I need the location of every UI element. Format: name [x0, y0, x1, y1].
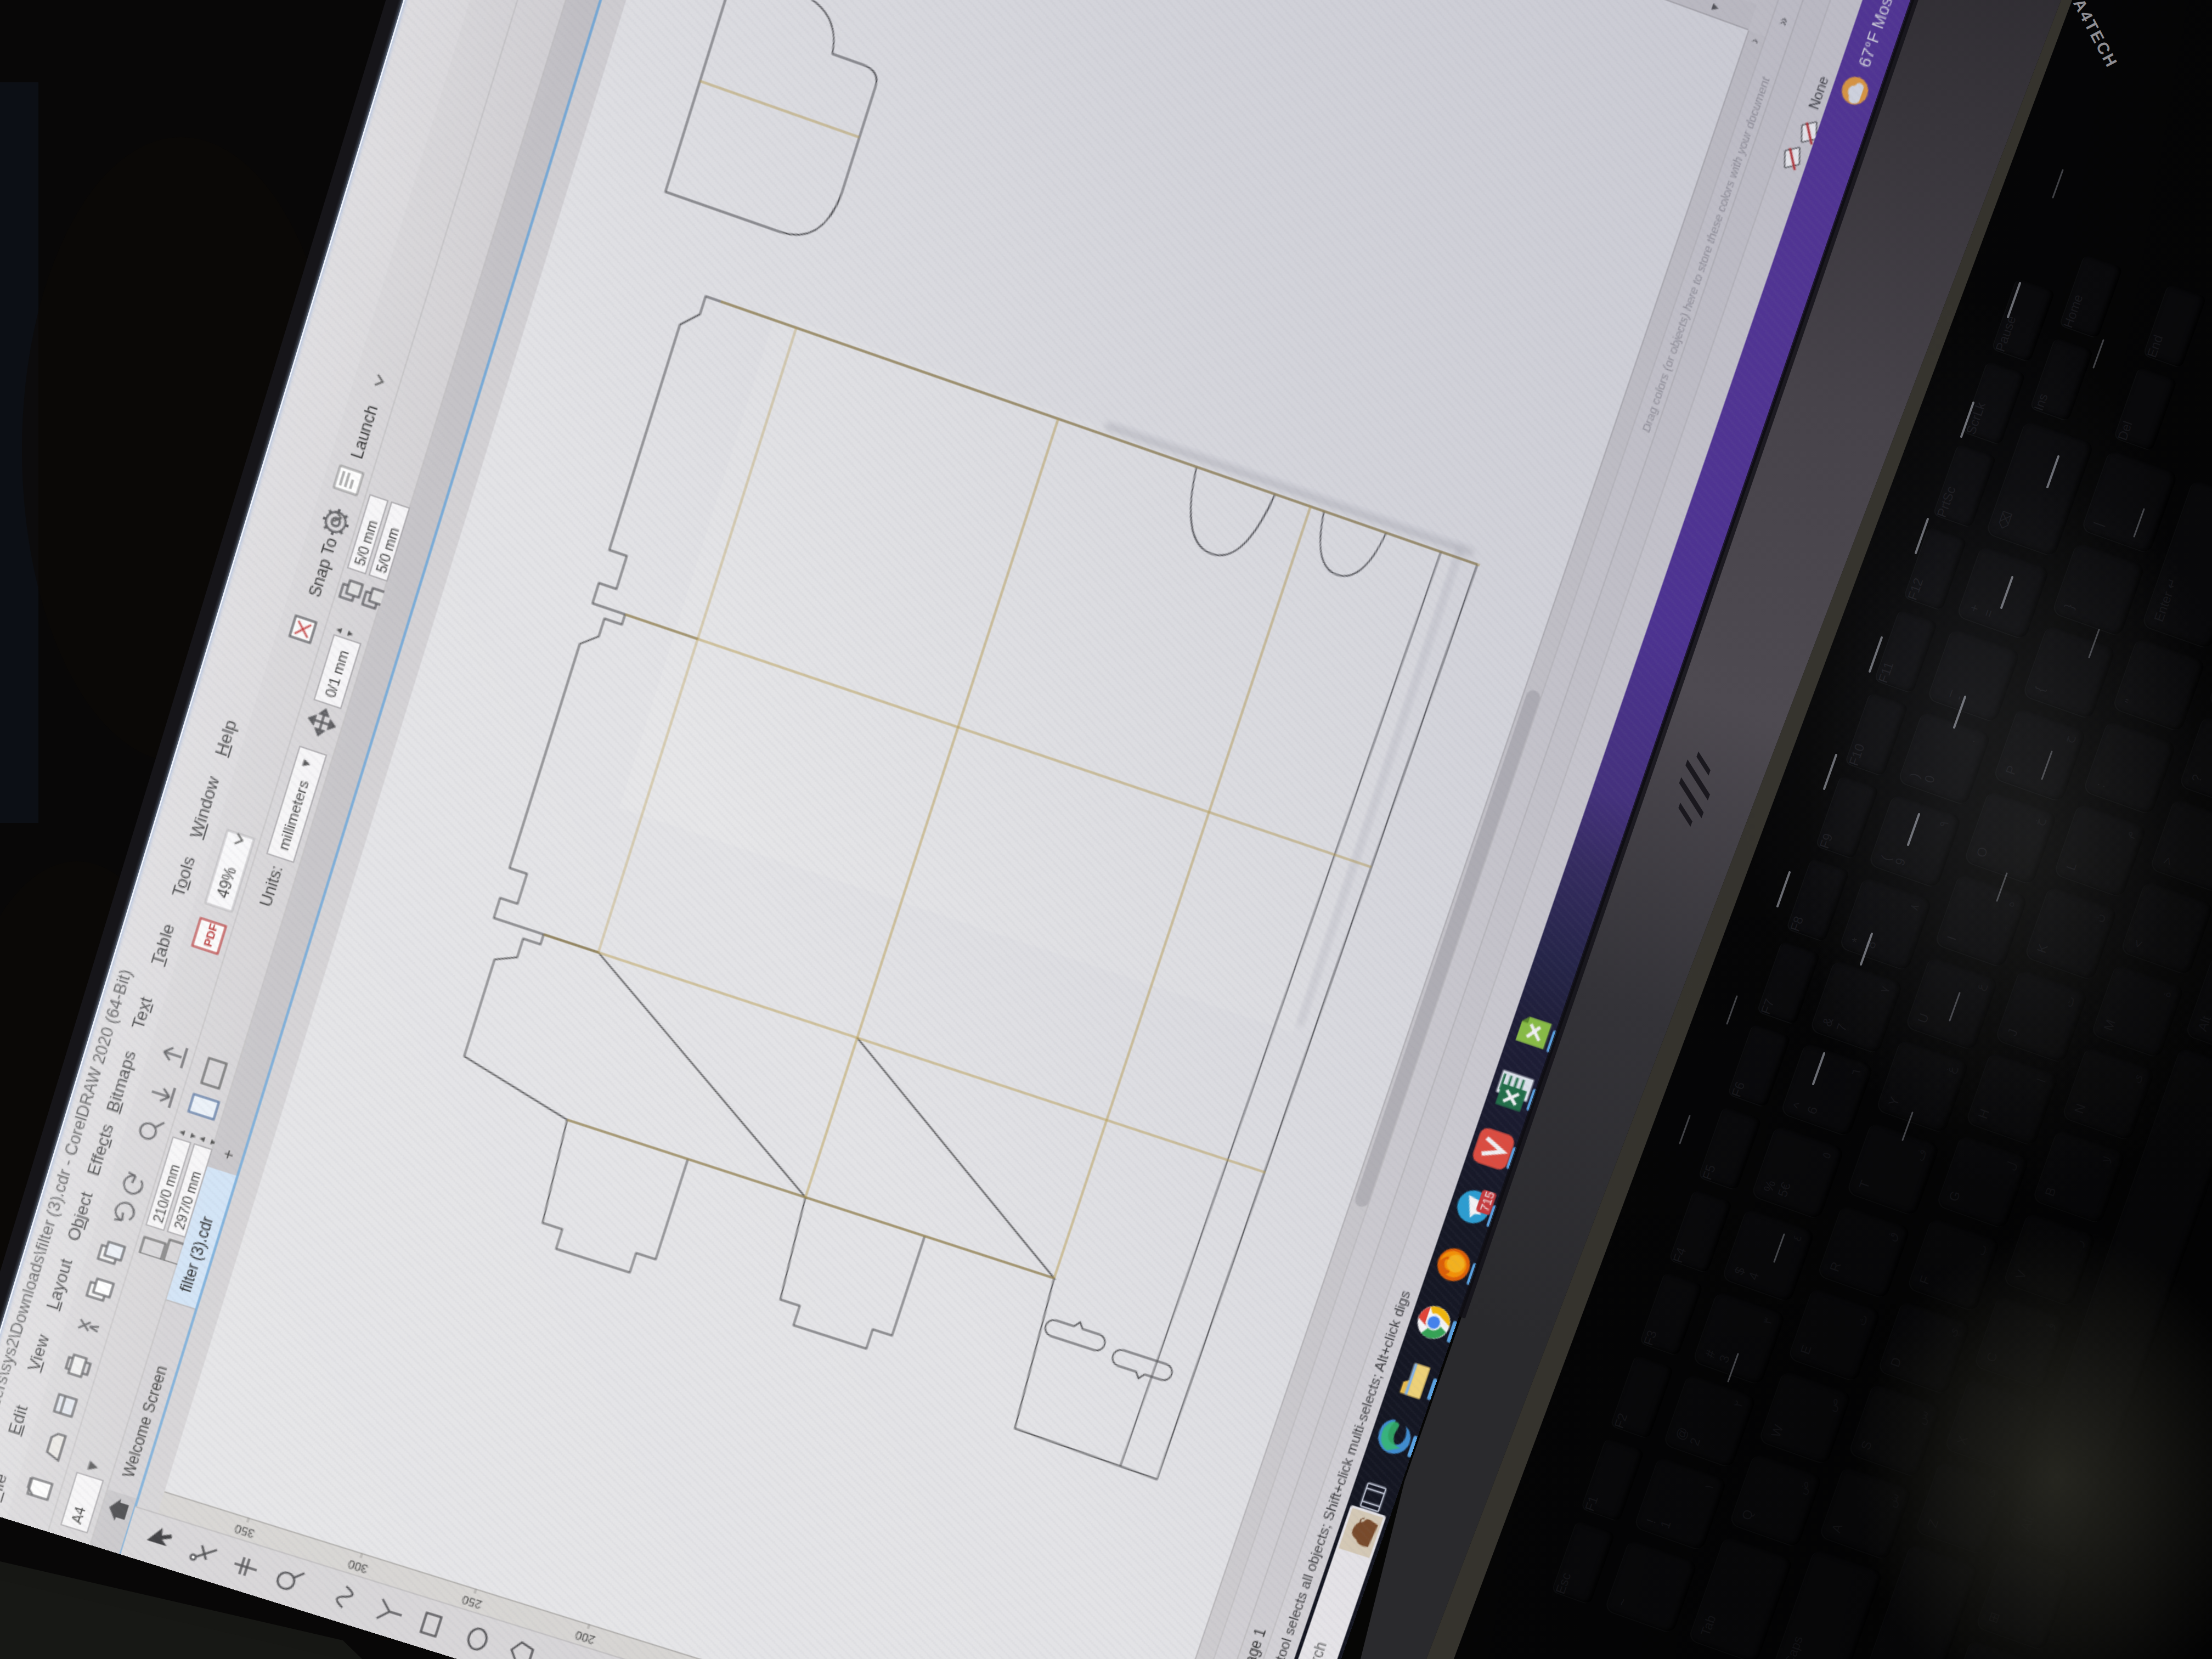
- svg-text:Snap To: Snap To: [305, 535, 340, 600]
- svg-text:Launch: Launch: [347, 403, 381, 461]
